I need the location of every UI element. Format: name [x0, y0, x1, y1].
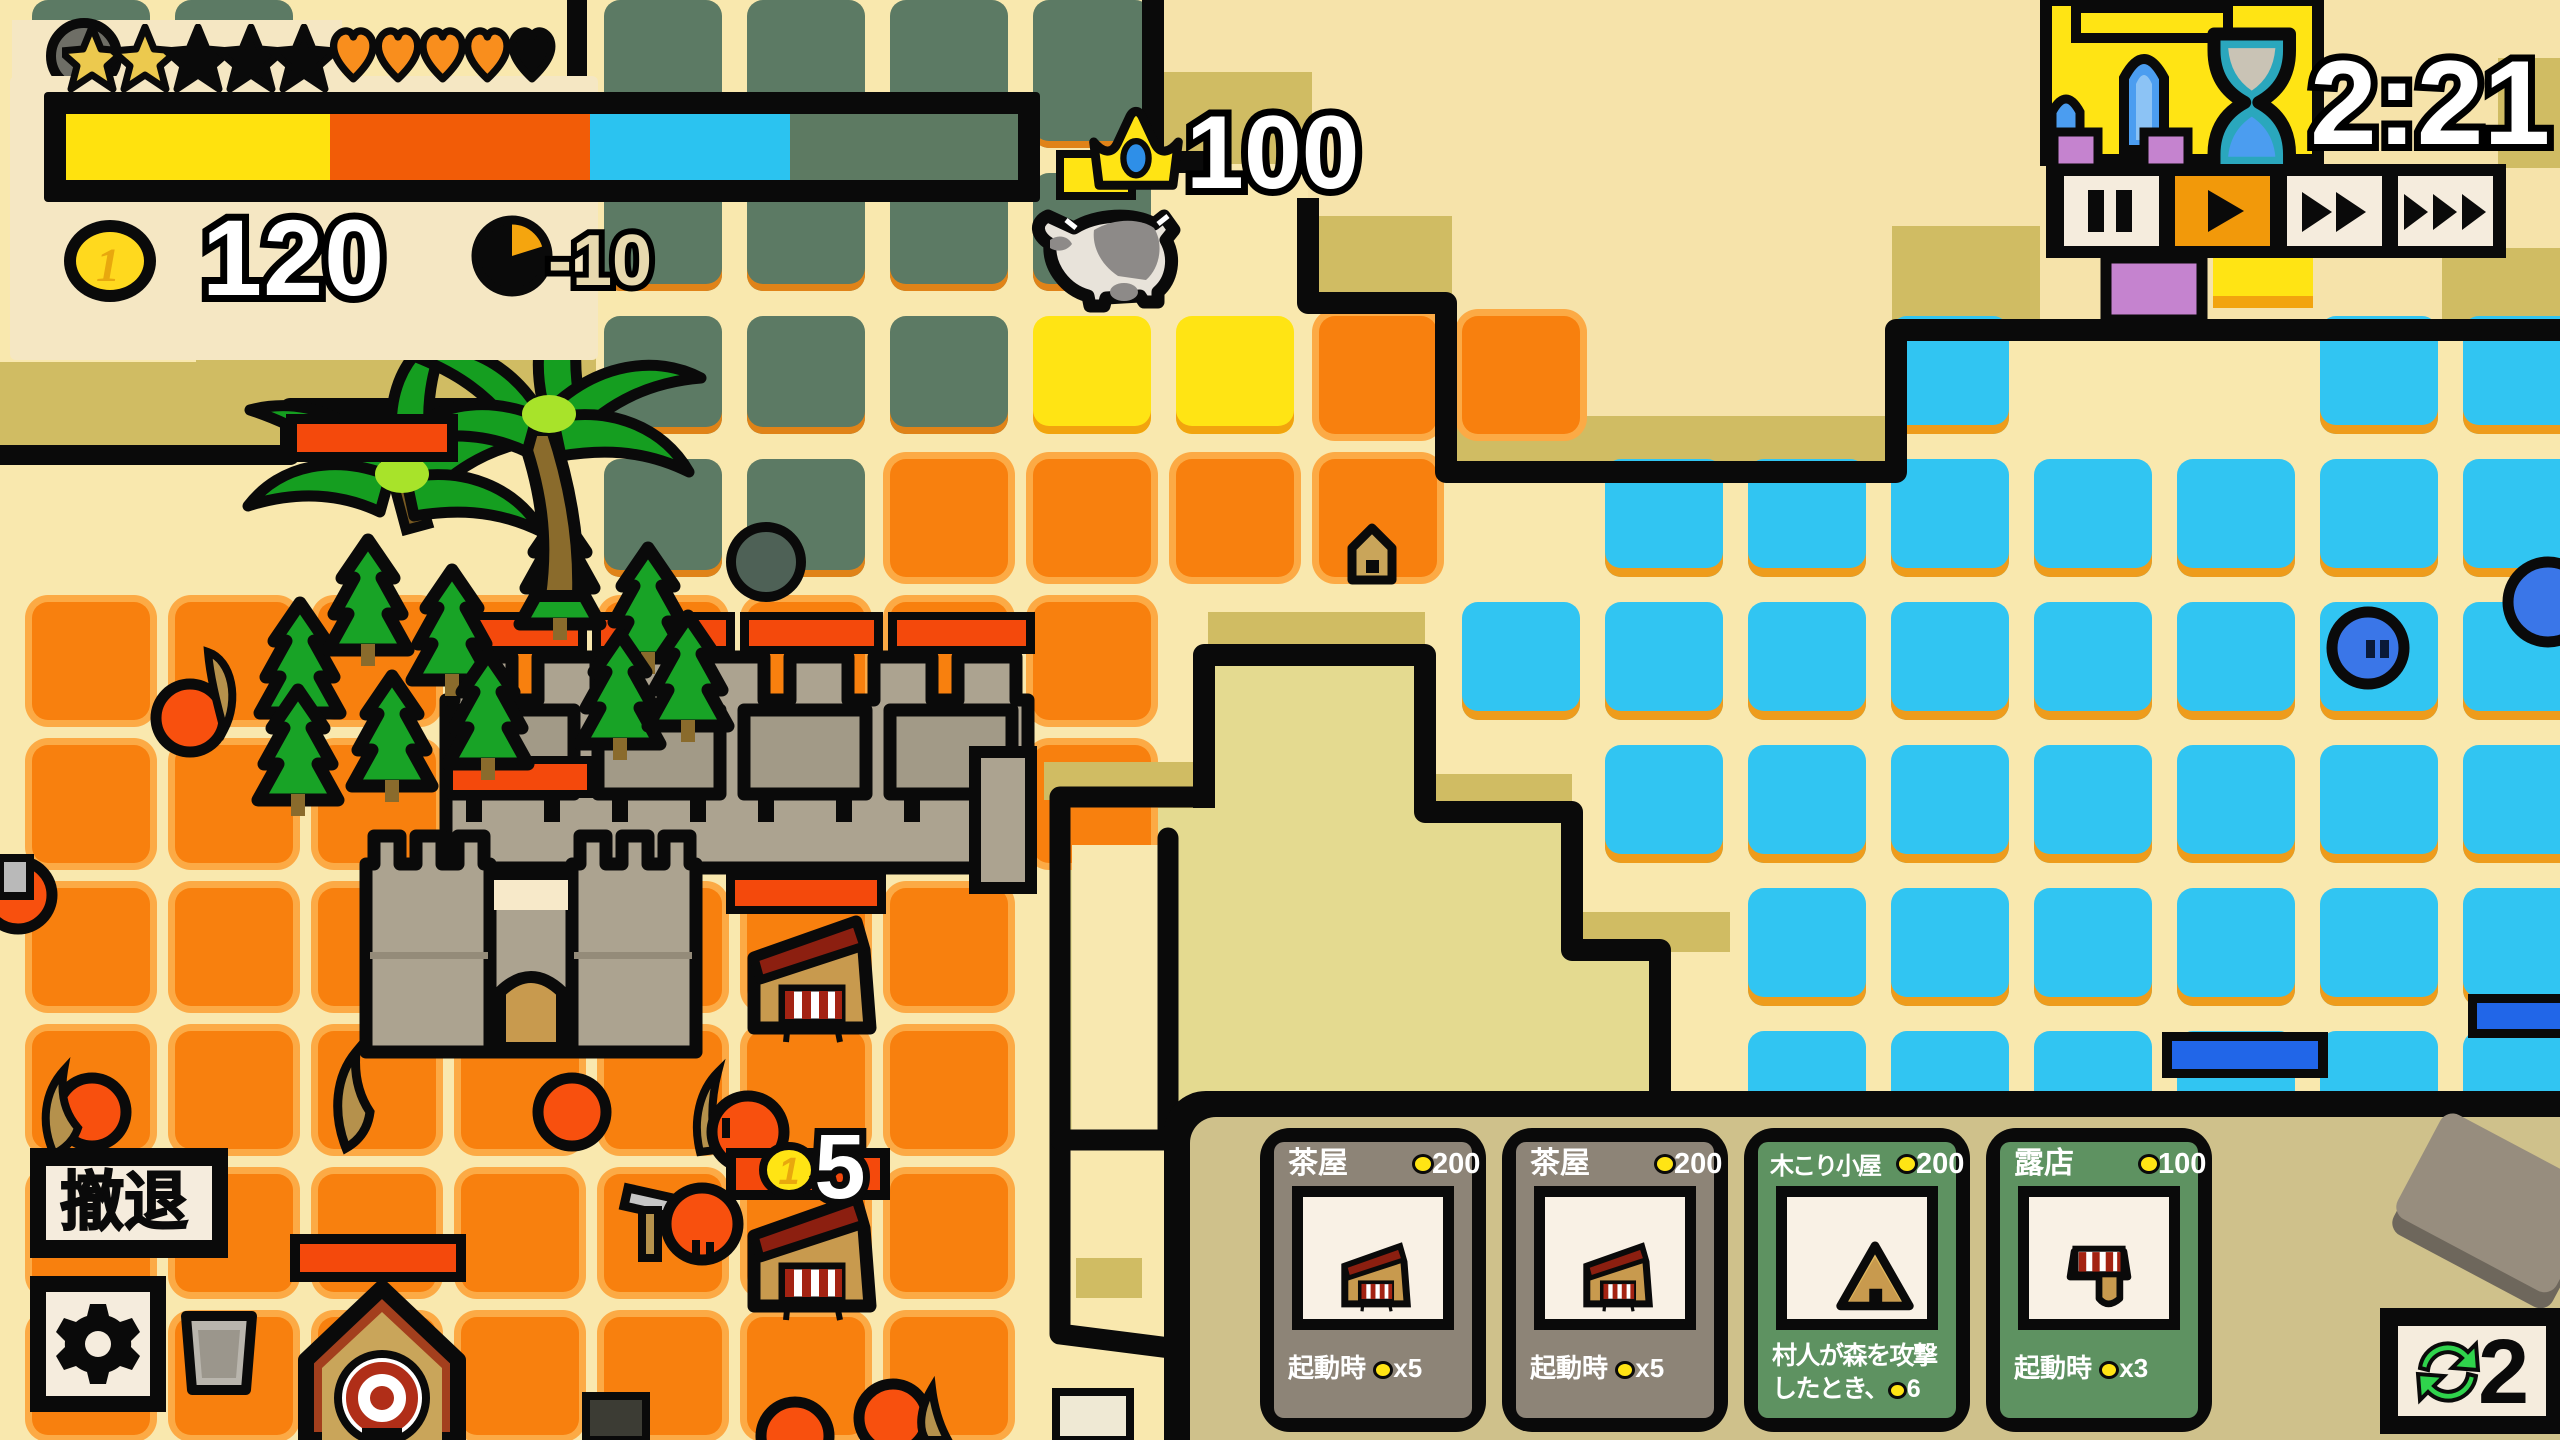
- svg-text:1: 1: [778, 1151, 799, 1193]
- svg-text:5: 5: [814, 1116, 865, 1218]
